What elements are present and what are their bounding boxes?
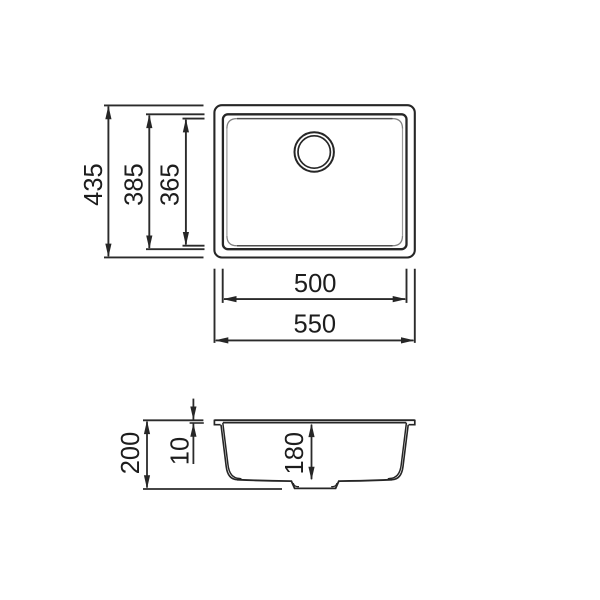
svg-text:550: 550 xyxy=(294,310,337,338)
svg-text:385: 385 xyxy=(120,163,148,206)
svg-text:200: 200 xyxy=(117,432,145,475)
svg-text:435: 435 xyxy=(80,163,108,206)
svg-text:10: 10 xyxy=(167,437,195,465)
svg-text:500: 500 xyxy=(294,270,337,298)
svg-text:365: 365 xyxy=(157,163,185,206)
svg-text:180: 180 xyxy=(281,432,309,475)
